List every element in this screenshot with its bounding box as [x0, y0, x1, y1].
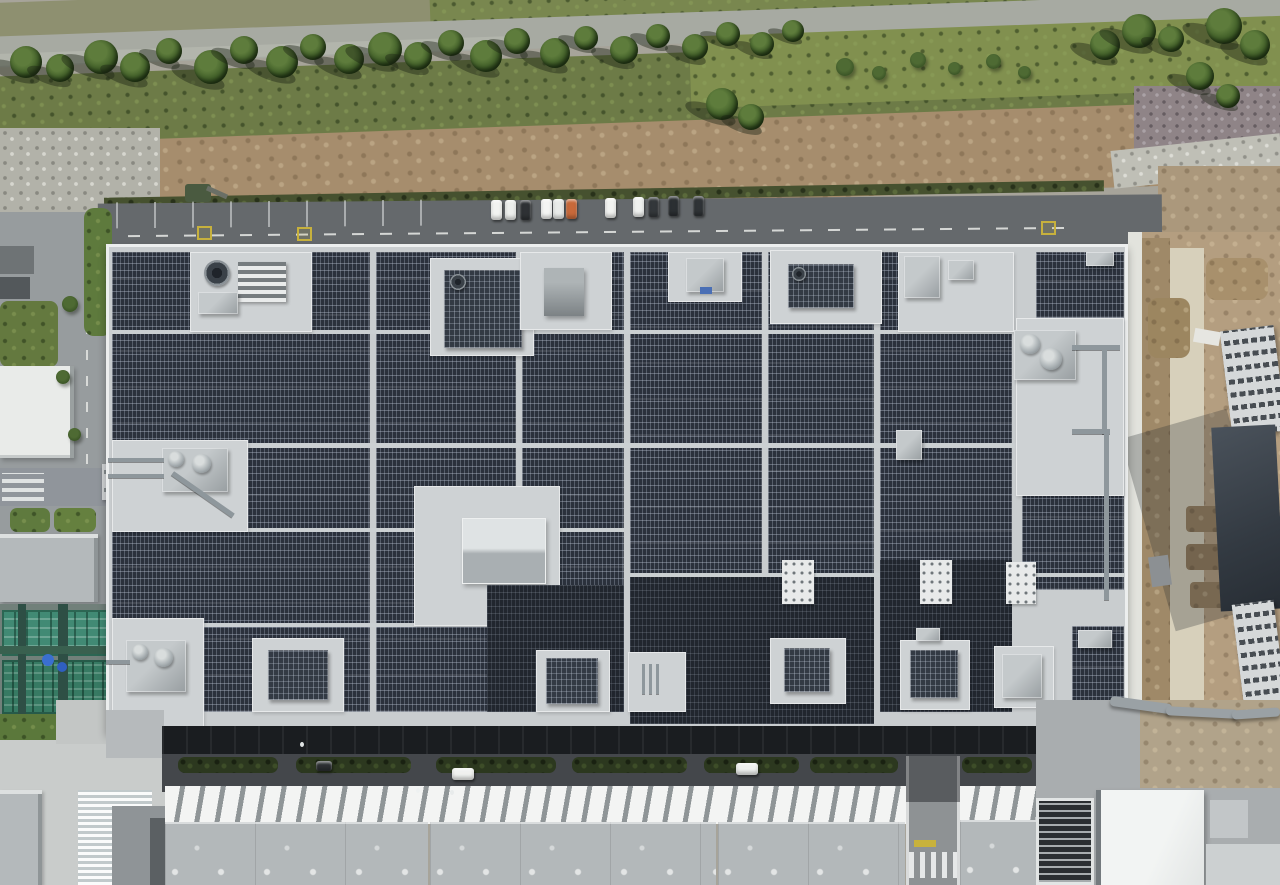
chiller-drum-2 [1040, 348, 1062, 370]
warehouse-roof-3 [718, 822, 905, 885]
shrub [986, 54, 1001, 69]
crosswalk-west [2, 473, 44, 501]
vent-pipe-s3c [656, 664, 659, 694]
parked-car [505, 200, 516, 220]
parked-car [605, 198, 616, 218]
pipe-sw [106, 660, 130, 664]
skid-sw-drum-1 [132, 644, 148, 660]
skid-drum-2 [192, 454, 211, 473]
utility-pipe-h [0, 646, 118, 654]
roof-unit-n5b [948, 260, 974, 280]
pipe-east-v2 [1104, 432, 1109, 600]
parked-car [553, 199, 564, 219]
ahu-unit-s1 [268, 650, 328, 700]
tree [1186, 62, 1214, 90]
ahu-fan-n1 [450, 274, 466, 290]
parking-stall-lines [116, 200, 426, 229]
penthouse-center [462, 518, 546, 584]
roof-unit-s5-small [916, 628, 940, 641]
south-facade [162, 726, 1128, 756]
shrub [872, 66, 886, 80]
tree [156, 38, 182, 64]
roof-unit-s6 [1002, 654, 1042, 698]
south-hedge [962, 757, 1032, 773]
pipe-east-h1 [1072, 345, 1120, 350]
parked-car [648, 197, 659, 217]
warehouse-roof-4 [960, 820, 1036, 885]
warehouse-ribs-1 [165, 786, 430, 824]
south-hedge [572, 757, 687, 773]
grass-west-1 [0, 301, 58, 367]
chiller-drum-1 [1020, 334, 1040, 354]
south-hedge [810, 757, 898, 773]
shrub-west-2 [56, 370, 70, 384]
car-south-2 [736, 763, 758, 775]
roof-walkway-h2 [112, 443, 1124, 448]
grass-west-3 [54, 508, 96, 532]
tree [1158, 26, 1184, 52]
dirt-pile-1 [1148, 298, 1190, 358]
car-south-1 [452, 768, 474, 780]
inverter-unit-3 [1006, 562, 1036, 604]
south-hedge [296, 757, 411, 773]
marking-square-3 [1041, 221, 1056, 235]
east-debris-2 [1148, 555, 1172, 587]
pipe-west-1 [108, 458, 164, 462]
east-glass-facade [1211, 424, 1280, 611]
car-south-3 [316, 761, 332, 771]
shrub [910, 52, 926, 68]
tree [438, 30, 464, 56]
vent-pipe-s3a [642, 664, 645, 694]
roof-unit-n5a [904, 256, 940, 298]
shrub-west-1 [62, 296, 78, 312]
shrub [1018, 66, 1031, 79]
marking-square-2 [297, 227, 312, 241]
inverter-unit-2 [920, 560, 952, 604]
parked-car [693, 196, 704, 216]
roof-unit-se [1078, 630, 1112, 648]
pipe-west-2 [108, 474, 164, 478]
warehouse-ribs-4 [960, 786, 1036, 824]
roof-unit-nw [198, 292, 238, 314]
gray-building [0, 534, 98, 602]
roof-stairs [238, 262, 286, 302]
pedestrian-1 [416, 788, 420, 793]
ahu-unit-s5 [910, 650, 958, 698]
parked-car [491, 200, 502, 220]
dirt-pile-2 [1206, 258, 1268, 300]
warehouse-roof-2 [430, 822, 716, 885]
tree [1240, 30, 1270, 60]
pipe-east-v1 [1102, 348, 1107, 434]
solar-unit-s2 [546, 658, 598, 704]
shrub [948, 62, 961, 75]
aerial-photo-solar-factory [0, 0, 1280, 885]
roof-unit-mid [896, 430, 922, 460]
tree [574, 26, 598, 50]
skid-sw-drum-2 [154, 648, 173, 667]
roof-unit-ne [1086, 252, 1114, 266]
south-hedge [178, 757, 278, 773]
south-wall-step [106, 710, 164, 758]
parked-car [541, 199, 552, 219]
tree [738, 104, 764, 130]
vent-pipe-s3b [649, 664, 652, 694]
southeast-building [1206, 844, 1280, 885]
warehouse-roof-1 [165, 822, 428, 885]
inverter-unit-1 [782, 560, 814, 604]
pedestrian-3 [300, 742, 304, 747]
tree [1216, 84, 1240, 108]
marking-square-1 [197, 226, 212, 240]
small-building-1 [0, 246, 34, 274]
parked-car [633, 197, 644, 217]
pump-blue-1 [42, 654, 54, 666]
pedestrian-2 [450, 790, 454, 795]
rooftop-fan-nw [204, 260, 230, 286]
parked-car [566, 199, 577, 219]
warehouse-ribs-3 [718, 786, 906, 824]
warehouse-ribs-2 [430, 786, 718, 824]
shrub [836, 58, 854, 76]
grass-west-2 [10, 508, 50, 532]
exit-road-shadow [906, 756, 960, 802]
tree [1206, 8, 1242, 44]
ahu-unit-s4 [784, 648, 830, 692]
crosswalk-south [909, 852, 957, 878]
white-roof-building [1096, 790, 1204, 885]
skid-drum-1 [168, 451, 184, 467]
southeast-shed [1210, 800, 1248, 838]
parked-car [668, 196, 679, 216]
shrub-west-3 [68, 428, 81, 441]
roof-vent-blue [700, 287, 712, 294]
tree [782, 20, 804, 42]
parked-car [520, 200, 531, 220]
ahu-fan-n4 [792, 267, 806, 281]
sw-building-gray [0, 790, 42, 885]
pump-blue-2 [57, 662, 67, 672]
small-building-2 [0, 277, 30, 299]
plant-room-n2 [544, 268, 584, 316]
road-text-mark [914, 840, 936, 847]
louver-building [1036, 798, 1094, 885]
